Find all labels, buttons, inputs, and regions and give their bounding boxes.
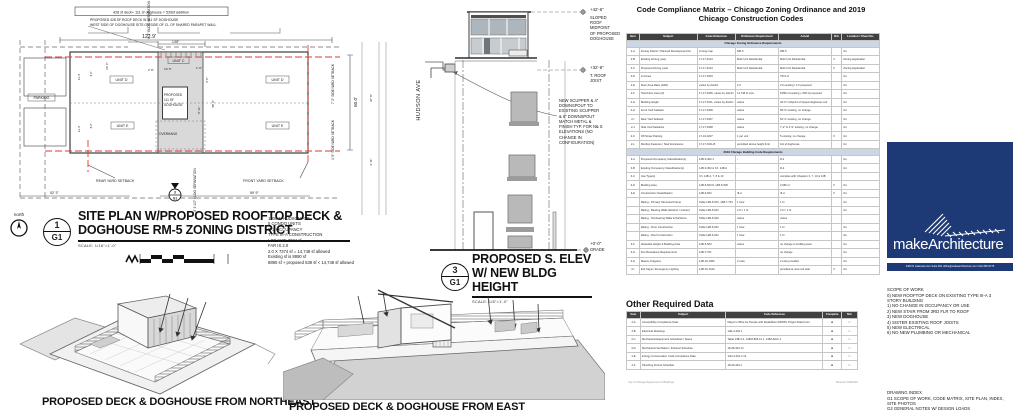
svg-text:UNIT D: UNIT D — [272, 78, 284, 82]
svg-text:111 SF: 111 SF — [164, 98, 174, 102]
table-cell: Mechanical Equipment Schedules / Specs — [640, 335, 725, 343]
table-cell: 1 hr — [778, 232, 831, 240]
table-row: 2-LRooftop Features / Stair Enclosures17… — [627, 140, 880, 148]
matrix-footer-left: City of Chicago Department of Buildings — [628, 381, 674, 384]
table-cell — [831, 198, 841, 206]
table-cell: G1 — [842, 156, 880, 164]
table-cell: G1 — [842, 223, 880, 231]
table-cell: G1 — [842, 81, 880, 89]
table-cell: 2-I — [627, 115, 640, 123]
table-cell — [627, 232, 640, 240]
table-cell: 14B-5-503.8, 14B-5-506 — [697, 181, 735, 189]
svg-text:6' 7" BLDG SEPARATION: 6' 7" BLDG SEPARATION — [147, 0, 151, 39]
svg-text:REAR YARD SETBACK: REAR YARD SETBACK — [96, 179, 135, 183]
zoning-note-line: 8890 sf + proposed 539 sf < 14,748 sf al… — [268, 260, 428, 265]
table-row: Rating - Nonbearing Walls & PartitionsTa… — [627, 215, 880, 223]
table-cell: 2 hr / 1 hr — [735, 206, 778, 214]
elevation-note-line: DOGHOUSE — [590, 36, 620, 41]
table-cell: 3-E — [627, 189, 640, 197]
table-cell: G1 — [842, 47, 880, 55]
table-cell: G1 — [842, 164, 880, 172]
marker-sheet: G1 — [44, 232, 70, 243]
table-row: 3-FAllowable Height & Building Area14B-5… — [627, 240, 880, 248]
index-line: G2 GENERAL NOTES W/ DESIGN LOADS — [887, 406, 1022, 411]
table-cell — [831, 240, 841, 248]
table-cell: Zoning Application — [842, 64, 880, 72]
scupper-note-line: CONFIGURATION) — [559, 140, 623, 145]
table-cell: 2-H — [627, 106, 640, 114]
col-header: N/A — [831, 34, 841, 41]
table-cell: Electrical Drawings — [640, 327, 725, 335]
table-cell: 3-F — [627, 240, 640, 248]
col-header: Code Reference — [697, 34, 735, 41]
table-cell: 3-G — [627, 249, 640, 257]
svg-text:OVERHANG: OVERHANG — [159, 132, 178, 136]
elevation-facade — [430, 61, 577, 250]
table-cell: varies — [778, 215, 831, 223]
drawing-index-lines: G1 SCOPE OF WORK, CODE MATRIX, SITE PLAN… — [887, 396, 1022, 412]
table-cell: 2-D — [627, 73, 640, 81]
table-cell: G1 — [842, 73, 880, 81]
table-row: Rating - Roof ConstructionTable 14B-6-60… — [627, 232, 880, 240]
north-label: north — [6, 212, 32, 217]
table-cell: □ — [841, 335, 857, 343]
table-cell: □ — [841, 361, 857, 369]
table-cell: ■ — [823, 335, 841, 343]
table-row: 3-DBuilding Area14B-5-503.8, 14B-5-5062,… — [627, 181, 880, 189]
table-row: 4-FPlumbing Fixture Schedule18-29-403.1■… — [627, 361, 858, 369]
table-cell: 4-F — [627, 361, 641, 369]
elevation-annotation-top-lines: SLOPEDROOFMIDPOINTOF PROPOSEDDOGHOUSE — [590, 15, 620, 41]
table-cell: 2-G — [627, 98, 640, 106]
table-cell: Lot Area — [639, 73, 697, 81]
table-cell: - — [735, 164, 778, 172]
table-cell: 3-C — [627, 172, 640, 180]
col-header: Code Reference — [726, 312, 823, 319]
svg-text:3: 3 — [174, 191, 176, 195]
table-cell: Rating - Primary Structural Frame — [639, 198, 697, 206]
svg-text:DOGHOUSE: DOGHOUSE — [164, 103, 183, 107]
table-cell: 2-F — [627, 90, 640, 98]
table-cell: 1 hr — [778, 198, 831, 206]
table-cell: 4-B — [627, 327, 641, 335]
table-cell: III-A — [778, 189, 831, 197]
table-cell: 2-B — [627, 56, 640, 64]
table-cell: 2-A — [627, 47, 640, 55]
matrix-title-line2: Chicago Construction Codes — [622, 15, 880, 24]
table-cell: G1 — [842, 98, 880, 106]
table-cell: Side Yard Setbacks — [639, 123, 697, 131]
table-row: 2-DLot Area17-17-03037374 sfG1 — [627, 73, 880, 81]
svg-text:11.4': 11.4' — [77, 73, 81, 80]
table-cell: 7374 sf — [778, 73, 831, 81]
scope-of-work-lines: 0) NEW ROOFTOP DECK ON EXISTING TYPE III… — [887, 293, 1022, 336]
table-cell: 1 hour — [735, 198, 778, 206]
marker-sheet: G1 — [442, 277, 468, 288]
matrix-title: Code Compliance Matrix – Chicago Zoning … — [622, 6, 880, 24]
graphic-scale-bar — [124, 252, 234, 268]
table-cell: 2 hr / 1 hr — [778, 206, 831, 214]
table-cell: Means of Egress — [639, 257, 697, 265]
svg-text:11.4': 11.4' — [77, 125, 81, 132]
svg-text:8' 11": 8' 11" — [197, 106, 201, 113]
table-cell: Table 14B-6-601 — [697, 223, 735, 231]
svg-text:20' 0": 20' 0" — [105, 62, 109, 70]
table-cell: G1 — [842, 198, 880, 206]
svg-text:10' 5": 10' 5" — [164, 67, 172, 71]
table-cell: Energy Conservation Code Compliance Data — [640, 352, 725, 360]
table-cell: X — [831, 132, 841, 140]
table-cell: ■ — [823, 318, 841, 326]
firm-address-bar: 2400 N Lakeview Ave Suite 601 office@mak… — [887, 263, 1013, 271]
table-cell: no change — [778, 249, 831, 257]
table-cell: Plumbing Fixture Schedule — [640, 361, 725, 369]
table-cell — [627, 198, 640, 206]
svg-text:60.0': 60.0' — [353, 97, 358, 107]
table-row: Rating - Floor ConstructionTable 14B-6-6… — [627, 223, 880, 231]
table-row: 2-IRear Yard Setback17-17-0307varies52'-… — [627, 115, 880, 123]
svg-text:FRONT YARD SETBACK: FRONT YARD SETBACK — [243, 179, 284, 183]
table-cell: 17-17-0104 — [697, 64, 735, 72]
table-cell: G1 — [842, 240, 880, 248]
table-cell: 42'-6" midpoint of sloped doghouse roof — [778, 98, 831, 106]
table-cell — [627, 206, 640, 214]
table-cell: 2,966 sf — [778, 181, 831, 189]
table-cell: G1 — [842, 266, 880, 274]
table-cell: G1 — [842, 181, 880, 189]
table-row: 2-EFloor Area Ratio (FAR)varies by distr… — [627, 81, 880, 89]
table-cell: X — [831, 181, 841, 189]
table-row: 4-AAccessibility Compliance DataMayor's … — [627, 318, 858, 326]
table-cell: Multi Unit Residential — [735, 56, 778, 64]
table-cell: Rating - Floor Construction — [639, 223, 697, 231]
svg-text:1' 6": 1' 6" — [196, 66, 202, 70]
col-header: Actual — [778, 34, 831, 41]
grade-label: GRADE — [590, 247, 605, 252]
table-cell: 1 hour — [735, 223, 778, 231]
table-row: 2-GBuilding Height17-17-0311, varies by … — [627, 98, 880, 106]
render-east-caption: PROPOSED DECK & DOGHOUSE FROM EAST — [289, 401, 525, 413]
table-cell: 3-D — [627, 181, 640, 189]
svg-text:37' 8": 37' 8" — [369, 94, 373, 102]
table-cell: 17-17-0305, varies by district — [697, 90, 735, 98]
section-label: Chicago Zoning Ordinance Requirements — [627, 40, 880, 47]
table-cell — [831, 73, 841, 81]
table-cell: varies — [735, 123, 778, 131]
elevation-title-1: PROPOSED S. ELEV — [472, 253, 592, 267]
elevation-level-mid: +32'-6" — [590, 65, 604, 71]
north-arrow: north — [6, 212, 32, 243]
table-cell: G1 — [842, 140, 880, 148]
table-cell: 1 hour — [735, 232, 778, 240]
table-row: 2-HFront Yard Setback17-17-0306varies59'… — [627, 106, 880, 114]
col-header: Location / Sheet No. — [842, 34, 880, 41]
matrix-header-row: Item Subject Code Reference Complete N/A — [627, 312, 858, 319]
svg-text:3.2': 3.2' — [89, 71, 93, 76]
table-cell — [831, 164, 841, 172]
table-cell: 4-D — [627, 344, 641, 352]
table-cell — [831, 140, 841, 148]
table-row: 3-CUse Type(s)Ch. 14B-2, 7, 8 & 10compli… — [627, 172, 880, 180]
table-cell: Existing Zoning (use) — [639, 56, 697, 64]
elevation-annotation-mid: +32'-6" — [590, 65, 604, 71]
table-cell: 7'-2" & 4'-9" existing, no change — [778, 123, 831, 131]
svg-text:14'8": 14'8" — [172, 40, 180, 44]
logo-wordmark: makeArchitecture — [893, 236, 1003, 253]
table-cell: R-2 — [778, 156, 831, 164]
section-cut-marker: 3 G1 — [169, 183, 181, 201]
table-cell — [735, 172, 778, 180]
table-cell: zoning map — [697, 47, 735, 55]
table-cell: G1 — [842, 189, 880, 197]
table-cell: 18-29-403.1 — [726, 361, 823, 369]
svg-text:52' 3": 52' 3" — [50, 191, 59, 195]
table-cell: X — [831, 56, 841, 64]
table-cell — [842, 172, 880, 180]
table-cell: ■ — [823, 361, 841, 369]
table-cell — [831, 81, 841, 89]
table-cell: Mayor's Office for People with Disabilit… — [726, 318, 823, 326]
table-cell: 14N-4-401.2.12 — [726, 352, 823, 360]
elevation-marker: 3 G1 — [441, 263, 469, 291]
table-row: 4-CMechanical Equipment Schedules / Spec… — [627, 335, 858, 343]
col-header: Ordinance Requirement — [735, 34, 778, 41]
table-cell: 14,748 sf max — [735, 90, 778, 98]
table-cell: RM-5 — [778, 47, 831, 55]
col-header: Complete — [823, 312, 841, 319]
table-cell — [831, 123, 841, 131]
table-cell: Off-Street Parking — [639, 132, 697, 140]
svg-text:3.2': 3.2' — [89, 123, 93, 128]
section-row: Chicago Zoning Ordinance Requirements — [627, 40, 880, 47]
table-cell — [831, 232, 841, 240]
svg-text:G1: G1 — [173, 196, 177, 200]
matrix-footer-right: Revised 7/09/2020 — [836, 381, 858, 384]
table-cell: Use Type(s) — [639, 172, 697, 180]
table-cell: Proposed Zoning (use) — [639, 64, 697, 72]
table-cell: 1 per unit — [735, 132, 778, 140]
table-cell: Ch. 14B-2, 7, 8 & 10 — [697, 172, 735, 180]
svg-text:59' 9": 59' 9" — [250, 191, 259, 195]
svg-text:35' 9": 35' 9" — [211, 100, 215, 108]
table-cell: ■ — [823, 344, 841, 352]
table-cell: R-2 — [778, 164, 831, 172]
svg-text:8' 9 1/2" BLDG SEPARATION: 8' 9 1/2" BLDG SEPARATION — [193, 168, 197, 212]
marker-number: 3 — [442, 264, 468, 277]
table-cell — [831, 206, 841, 214]
table-cell: □ — [841, 344, 857, 352]
table-cell: Zoning Application — [842, 56, 880, 64]
table-cell: G1 — [842, 206, 880, 214]
table-cell: Floor Area Ratio (FAR) — [639, 81, 697, 89]
table-cell: 17-17-0308 — [697, 123, 735, 131]
table-cell: 2.0 existing / 2.0 proposed — [778, 81, 831, 89]
table-row: 2-AZoning District / Planned Development… — [627, 47, 880, 55]
table-cell: G1 — [842, 257, 880, 265]
street-label: HUDSON AVE — [416, 79, 422, 120]
table-cell: Accessibility Compliance Data — [640, 318, 725, 326]
table-row: 4-BElectrical Drawings14E-2-202.1■□ — [627, 327, 858, 335]
table-cell — [735, 181, 778, 189]
table-cell: Table 14B-6-601 — [697, 206, 735, 214]
col-header: N/A — [841, 312, 857, 319]
table-cell: 2 exits — [735, 257, 778, 265]
table-cell: Rear Yard Setback — [639, 115, 697, 123]
table-cell: G1 — [842, 232, 880, 240]
svg-text:UNIT E: UNIT E — [272, 124, 284, 128]
table-row: 2-BExisting Zoning (use)17-17-0104Multi … — [627, 56, 880, 64]
table-cell: no change to building area — [778, 240, 831, 248]
table-cell: varies — [735, 240, 778, 248]
render-east — [283, 288, 605, 400]
section-row: 2019 Chicago Building Code Requirements — [627, 149, 880, 156]
table-cell: Exit Signs / Emergency Lighting — [639, 266, 697, 274]
table-cell: 17-17-0104 — [697, 56, 735, 64]
firm-logo: makeArchitecture — [887, 142, 1013, 258]
table-cell — [831, 223, 841, 231]
render-northeast-caption: PROPOSED DECK & DOGHOUSE FROM NORTHEAST — [42, 396, 316, 408]
table-row: 3-EConstruction Classification14B-6-602I… — [627, 189, 880, 197]
table-cell: 1 hr — [778, 223, 831, 231]
table-cell: 14B-3-302 & Ch. 14B-3 — [697, 164, 735, 172]
table-cell: RM-5 — [735, 47, 778, 55]
table-row: 2-JSide Yard Setbacks17-17-0308varies7'-… — [627, 123, 880, 131]
svg-text:UNIT E: UNIT E — [117, 124, 129, 128]
table-cell — [831, 115, 841, 123]
table-cell — [831, 249, 841, 257]
col-header: Item — [627, 34, 640, 41]
table-cell: 3-I — [627, 266, 640, 274]
table-cell: 2 exits provided — [778, 257, 831, 265]
table-cell: Building Area — [639, 181, 697, 189]
table-cell — [735, 266, 778, 274]
elevation-annotation-top: +42'-6" — [590, 7, 604, 13]
table-row: 3-HMeans of Egress14B-10-10062 exits2 ex… — [627, 257, 880, 265]
architectural-sheet: 428 sf deck+ 111 sf doghouse = 539sf add… — [0, 0, 1024, 417]
table-cell: 3-H — [627, 257, 640, 265]
svg-text:4' 9" SIDEYARD SETBACK: 4' 9" SIDEYARD SETBACK — [331, 119, 335, 160]
table-cell: Table 14B-4-2, 14B-8-806.12.1, 14B-HVAC-… — [726, 335, 823, 343]
other-required-data-title: Other Required Data — [626, 299, 714, 309]
table-cell: Total Floor Area (sf) — [639, 90, 697, 98]
table-cell: G1 — [842, 106, 880, 114]
matrix-header-row: Item Subject Code Reference Ordinance Re… — [627, 34, 880, 41]
table-row: 3-GFire Resistance Requirements14B-7-701… — [627, 249, 880, 257]
table-cell — [842, 215, 880, 223]
table-cell: 14B-10-1013 — [697, 266, 735, 274]
table-cell: 14B-7-701 — [697, 249, 735, 257]
table-cell: X — [831, 266, 841, 274]
table-row: Rating - Primary Structural FrameTable 1… — [627, 198, 880, 206]
table-cell: 17-17-0311-B — [697, 140, 735, 148]
table-row: 4-EEnergy Conservation Code Compliance D… — [627, 352, 858, 360]
table-cell: 3-B — [627, 164, 640, 172]
table-cell: ■ — [823, 327, 841, 335]
table-cell: Multi Unit Residential — [735, 64, 778, 72]
table-cell: III-A — [735, 189, 778, 197]
grade-annotation: +0'-0" GRADE — [590, 241, 605, 252]
table-cell: 17-10-0207 — [697, 132, 735, 140]
other-required-data-table: Item Subject Code Reference Complete N/A… — [626, 311, 858, 370]
table-cell: Table 14B-6-601, 14B-7-704 — [697, 198, 735, 206]
roof-deck-note-2: WEST SIDE OF DOGHOUSE SITS ON SIDE OF CL… — [90, 23, 216, 27]
table-cell — [627, 215, 640, 223]
table-cell: permitted above height limit — [735, 140, 778, 148]
table-cell: G1 — [842, 123, 880, 131]
scupper-note: NEW SCUPPER & 4"DOWNSPOUT TOEXISTING SCU… — [559, 98, 623, 145]
table-cell — [831, 98, 841, 106]
table-cell: 2-C — [627, 64, 640, 72]
table-cell — [627, 223, 640, 231]
table-row: 3-AProposed Occupancy Classification(s)1… — [627, 156, 880, 164]
table-cell: Multi Unit Residential — [778, 56, 831, 64]
table-cell: □ — [841, 318, 857, 326]
table-cell: varies — [735, 106, 778, 114]
table-cell — [831, 257, 841, 265]
table-cell: Rating - Bearing Walls (Exterior / Inter… — [639, 206, 697, 214]
table-cell: Multi Unit Residential — [778, 64, 831, 72]
table-cell: 2-K — [627, 132, 640, 140]
table-cell: 14B-6-602 — [697, 189, 735, 197]
table-cell — [831, 47, 841, 55]
render-northeast — [20, 292, 280, 396]
table-cell: □ — [841, 327, 857, 335]
table-cell: 3-A — [627, 156, 640, 164]
zoning-notes: 1906 N HUDSON AVE5 CONDO UNITSR-2 OCCUPA… — [268, 216, 428, 265]
table-cell: Building Height — [639, 98, 697, 106]
scope-line: 6) NO NEW PLUMBING OR MECHANICAL — [887, 330, 1022, 335]
deck-area-note: 428 sf deck+ 111 sf doghouse = 539sf add… — [113, 10, 189, 14]
svg-text:4' 0": 4' 0" — [205, 77, 209, 83]
table-cell: 14B-10-1006 — [697, 257, 735, 265]
table-cell: varies — [735, 215, 778, 223]
table-cell: 52'-3" existing, no change — [778, 115, 831, 123]
table-cell: G1 — [842, 132, 880, 140]
code-matrix-table: Item Subject Code Reference Ordinance Re… — [626, 33, 880, 275]
table-cell: 2-L — [627, 140, 640, 148]
table-cell — [735, 249, 778, 257]
table-cell: 4-C — [627, 335, 641, 343]
table-cell: 59'-9" existing, no change — [778, 106, 831, 114]
elevation-level-top: +42'-6" — [590, 7, 604, 13]
table-cell: 111 sf doghouse — [778, 140, 831, 148]
table-cell — [831, 90, 841, 98]
table-cell: Front Yard Setback — [639, 106, 697, 114]
table-cell: Construction Classification — [639, 189, 697, 197]
elevation-note-line: JOIST — [590, 78, 606, 83]
table-cell: 14B-3-302.1 — [697, 156, 735, 164]
elevation-doghouse — [455, 12, 537, 61]
table-cell: complies with Chapters 3, 7, 10 & 14B — [778, 172, 831, 180]
table-cell: varies by district — [697, 81, 735, 89]
table-cell: 17-17-0306 — [697, 106, 735, 114]
svg-text:2' 6": 2' 6" — [148, 68, 154, 72]
table-row: 3-BExisting Occupancy Classification(s)1… — [627, 164, 880, 172]
table-cell: X — [831, 64, 841, 72]
table-cell: G1 — [842, 249, 880, 257]
table-cell: 14B-5-503 — [697, 240, 735, 248]
svg-text:4' 11": 4' 11" — [369, 158, 373, 165]
svg-text:UNIT D: UNIT D — [116, 78, 128, 82]
table-cell: 17-17-0311, varies by district — [697, 98, 735, 106]
table-cell: Proposed Occupancy Classification(s) — [639, 156, 697, 164]
table-cell: provided at new roof stair — [778, 266, 831, 274]
elevation-annotation-mid-lines: T. ROOFJOIST — [590, 73, 606, 83]
table-cell: 2-E — [627, 81, 640, 89]
table-cell: 14E-2-202.1 — [726, 327, 823, 335]
table-cell: 17-17-0307 — [697, 115, 735, 123]
table-cell: Table 14B-6-601 — [697, 232, 735, 240]
